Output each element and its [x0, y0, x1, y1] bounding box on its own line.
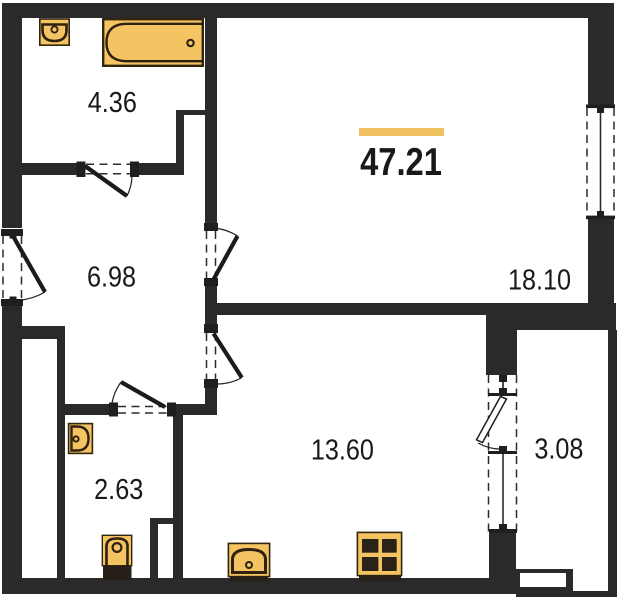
svg-text:4.36: 4.36	[88, 85, 137, 118]
svg-text:3.08: 3.08	[534, 432, 583, 465]
svg-text:18.10: 18.10	[508, 263, 571, 296]
svg-text:6.98: 6.98	[87, 260, 136, 293]
svg-text:2.63: 2.63	[94, 472, 143, 505]
svg-text:13.60: 13.60	[311, 433, 374, 466]
svg-text:47.21: 47.21	[360, 141, 442, 184]
